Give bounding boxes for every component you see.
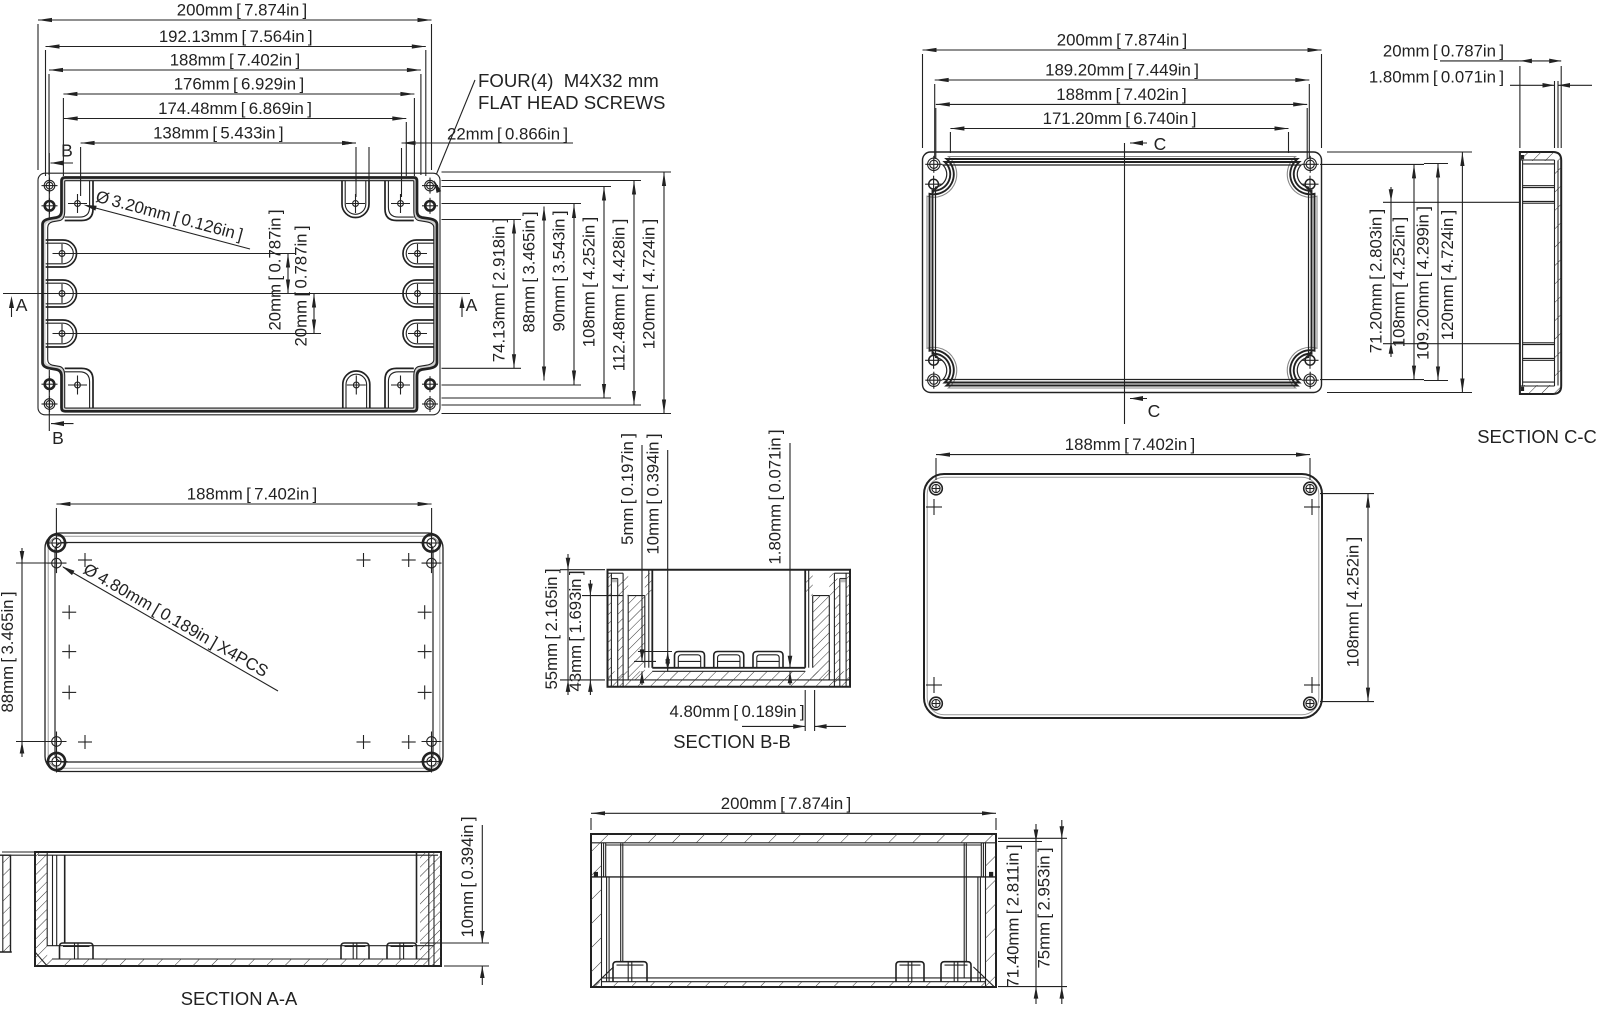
svg-text:SECTION B-B: SECTION B-B (673, 731, 791, 752)
svg-text:188mm [ 7.402in ]: 188mm [ 7.402in ] (187, 485, 317, 504)
svg-text:10mm [ 0.394in ]: 10mm [ 0.394in ] (458, 816, 477, 937)
svg-text:120mm [ 4.724in ]: 120mm [ 4.724in ] (1438, 210, 1457, 340)
svg-text:10mm [ 0.394in ]: 10mm [ 0.394in ] (644, 433, 663, 554)
svg-text:A: A (16, 295, 28, 315)
svg-text:112.48mm [ 4.428in ]: 112.48mm [ 4.428in ] (610, 219, 629, 372)
svg-text:109.20mm [ 4.299in ]: 109.20mm [ 4.299in ] (1414, 206, 1433, 360)
svg-text:120mm [ 4.724in ]: 120mm [ 4.724in ] (640, 219, 659, 349)
svg-text:SECTION C-C: SECTION C-C (1477, 426, 1597, 447)
svg-text:FLAT HEAD SCREWS: FLAT HEAD SCREWS (478, 92, 665, 113)
svg-text:192.13mm [ 7.564in ]: 192.13mm [ 7.564in ] (159, 27, 313, 46)
svg-text:55mm [ 2.165in ]: 55mm [ 2.165in ] (542, 568, 561, 689)
svg-text:20mm [ 0.787in ]: 20mm [ 0.787in ] (1383, 42, 1504, 61)
svg-text:75mm [ 2.953in ]: 75mm [ 2.953in ] (1035, 847, 1054, 968)
svg-text:174.48mm [ 6.869in ]: 174.48mm [ 6.869in ] (158, 99, 312, 118)
svg-text:43mm [ 1.693in ]: 43mm [ 1.693in ] (566, 570, 585, 691)
svg-text:189.20mm [ 7.449in ]: 189.20mm [ 7.449in ] (1045, 61, 1199, 80)
svg-text:71.20mm [ 2.803in ]: 71.20mm [ 2.803in ] (1367, 209, 1386, 353)
svg-text:188mm [ 7.402in ]: 188mm [ 7.402in ] (170, 51, 300, 70)
svg-text:71.40mm [ 2.811in ]: 71.40mm [ 2.811in ] (1004, 844, 1023, 987)
svg-text:200mm [ 7.874in ]: 200mm [ 7.874in ] (177, 1, 307, 20)
svg-text:188mm [ 7.402in ]: 188mm [ 7.402in ] (1056, 85, 1186, 104)
svg-text:90mm [ 3.543in ]: 90mm [ 3.543in ] (550, 210, 569, 331)
svg-text:5mm [ 0.197in ]: 5mm [ 0.197in ] (618, 433, 637, 545)
svg-text:88mm [ 3.465in ]: 88mm [ 3.465in ] (520, 211, 539, 332)
svg-text:108mm [ 4.252in ]: 108mm [ 4.252in ] (580, 217, 599, 347)
svg-text:C: C (1154, 134, 1167, 154)
svg-text:SECTION A-A: SECTION A-A (181, 988, 298, 1009)
svg-text:88mm [ 3.465in ]: 88mm [ 3.465in ] (0, 591, 17, 712)
svg-text:188mm [ 7.402in ]: 188mm [ 7.402in ] (1065, 435, 1195, 454)
svg-text:FOUR(4) M4X32 mm: FOUR(4) M4X32 mm (478, 70, 659, 91)
svg-text:C: C (1148, 401, 1161, 421)
svg-text:1.80mm [ 0.071in ]: 1.80mm [ 0.071in ] (766, 429, 785, 564)
svg-text:200mm [ 7.874in ]: 200mm [ 7.874in ] (721, 794, 851, 813)
svg-text:108mm [ 4.252in ]: 108mm [ 4.252in ] (1344, 537, 1363, 667)
svg-text:22mm [ 0.866in ]: 22mm [ 0.866in ] (447, 125, 568, 144)
svg-text:B: B (52, 428, 64, 448)
svg-text:20mm [ 0.787in ]: 20mm [ 0.787in ] (292, 225, 311, 346)
svg-text:138mm [ 5.433in ]: 138mm [ 5.433in ] (153, 124, 283, 143)
svg-text:176mm [ 6.929in ]: 176mm [ 6.929in ] (174, 75, 304, 94)
svg-text:4.80mm [ 0.189in ]: 4.80mm [ 0.189in ] (669, 702, 804, 721)
svg-text:74.13mm [ 2.918in ]: 74.13mm [ 2.918in ] (490, 218, 509, 362)
svg-text:171.20mm [ 6.740in ]: 171.20mm [ 6.740in ] (1043, 109, 1197, 128)
svg-text:108mm [ 4.252in ]: 108mm [ 4.252in ] (1390, 217, 1409, 347)
svg-text:A: A (466, 295, 478, 315)
svg-text:20mm [ 0.787in ]: 20mm [ 0.787in ] (266, 209, 285, 330)
svg-text:1.80mm [ 0.071in ]: 1.80mm [ 0.071in ] (1369, 68, 1504, 87)
svg-text:200mm [ 7.874in ]: 200mm [ 7.874in ] (1057, 31, 1187, 50)
